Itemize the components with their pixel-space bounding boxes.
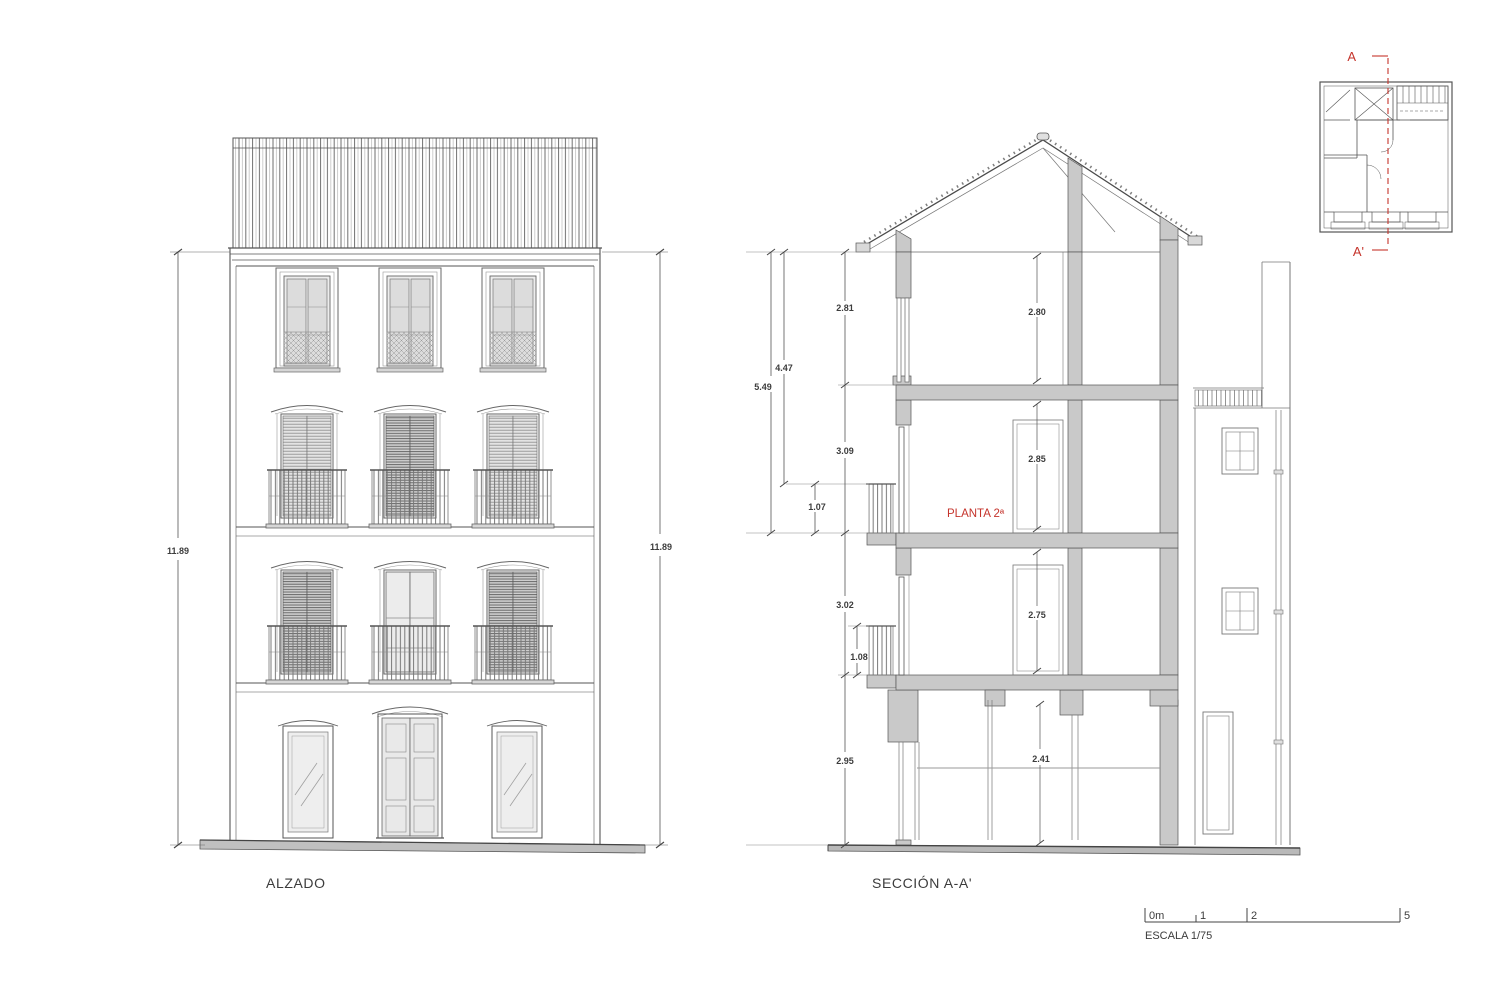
elevation-roof-tiles (233, 138, 597, 248)
section-title: SECCIÓN A-A' (872, 875, 972, 891)
section-roof (856, 133, 1202, 252)
dim-label-railing-second: 1.07 (808, 502, 826, 512)
section-floor-slabs (867, 385, 1178, 706)
elevation-sidewalk (200, 840, 645, 853)
key-plan-walls (1320, 82, 1452, 232)
elevation-dimension-right: 11.89 (602, 249, 672, 848)
dim-label-railing-first: 1.08 (850, 652, 868, 662)
elevation-second-floor-windows (266, 406, 554, 529)
scale-tick-2: 2 (1251, 910, 1257, 922)
elevation-left-door (278, 721, 338, 839)
elevation-attic-windows (274, 268, 546, 372)
section-extension-lines (746, 252, 896, 845)
scale-bar-ticks (1145, 908, 1400, 922)
section-rear-facade (1193, 262, 1290, 845)
elevation-main-door (372, 707, 448, 838)
elevation-cornice (228, 248, 602, 266)
scale-tick-1: 1 (1200, 910, 1206, 922)
dim-label-total-upper: 5.49 (754, 382, 772, 392)
elevation-right-door (487, 721, 547, 839)
dim-label-elevation-height-left: 11.89 (167, 546, 189, 556)
dim-label-first-room: 2.75 (1028, 610, 1046, 620)
dim-label-second-floor: 3.09 (836, 446, 854, 456)
dim-label-second-room: 2.85 (1028, 454, 1046, 464)
drawing-sheet: 11.89 11.89 ALZADO (0, 0, 1500, 1000)
dim-label-first-floor: 3.02 (836, 600, 854, 610)
key-plan-section-line (1372, 56, 1388, 250)
section-cut-walls (888, 158, 1178, 845)
section-ground-floor-interior (899, 700, 1160, 840)
scale-tick-0: 0m (1149, 910, 1164, 922)
architectural-drawing: 11.89 11.89 ALZADO (0, 0, 1500, 1000)
elevation-drawing: 11.89 11.89 ALZADO (167, 138, 672, 891)
elevation-first-floor-windows (266, 562, 554, 685)
scale-bar: 0m 1 2 5 ESCALA 1/75 (1145, 908, 1410, 942)
dim-label-top-floor: 2.81 (836, 303, 854, 313)
section-left-wall-openings (897, 298, 909, 675)
section-mark-a: A (1347, 49, 1356, 64)
dim-label-elevation-height-right: 11.89 (650, 542, 672, 552)
dim-label-to-railing: 4.47 (775, 363, 793, 373)
scale-label: ESCALA 1/75 (1145, 930, 1212, 942)
elevation-title: ALZADO (266, 875, 326, 891)
scale-tick-5: 5 (1404, 910, 1410, 922)
section-mark-a-prime: A' (1353, 244, 1364, 259)
section-drawing: 5.49 4.47 1.07 2.81 3.09 3.02 2.95 1.08 … (746, 133, 1300, 891)
dim-label-ground-floor: 2.95 (836, 756, 854, 766)
elevation-dimension-left: 11.89 (167, 249, 230, 848)
dim-label-ground-room: 2.41 (1032, 754, 1050, 764)
section-balcony-railings (866, 484, 896, 675)
key-plan: A A' (1320, 49, 1452, 259)
dim-label-top-room: 2.80 (1028, 307, 1046, 317)
section-floor-label: PLANTA 2ª (947, 508, 1005, 520)
section-ground (828, 845, 1300, 855)
